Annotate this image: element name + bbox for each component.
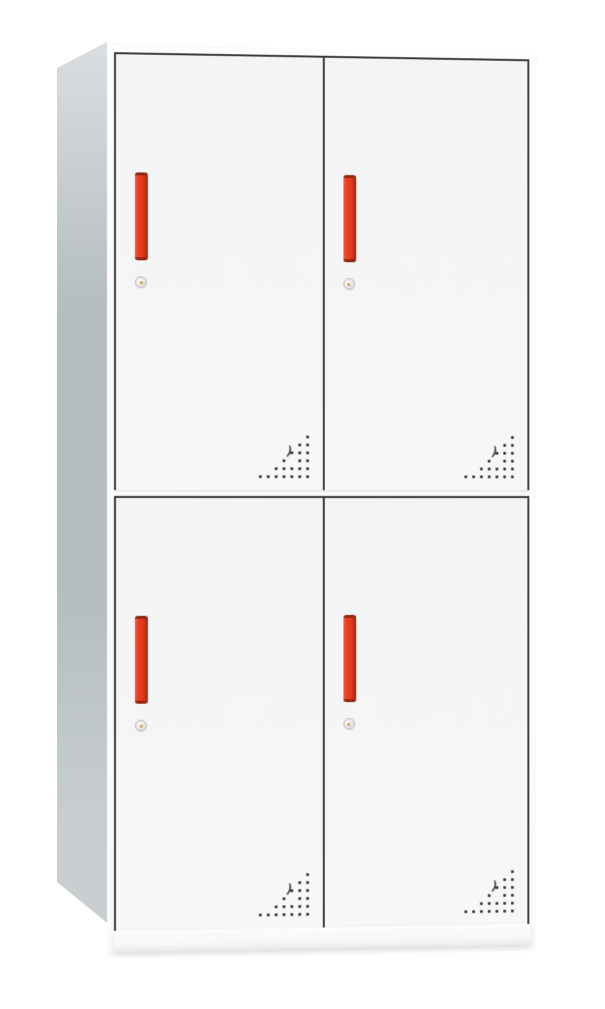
door-bottom-left[interactable]: ): [116, 498, 322, 933]
cam-lock[interactable]: [343, 278, 355, 290]
vent-hole: [504, 886, 507, 889]
vent-hole: [298, 460, 301, 463]
vent-hole: [298, 444, 301, 447]
cam-lock[interactable]: [343, 718, 355, 730]
vent-hole: [504, 452, 507, 455]
vent-hole: [298, 882, 301, 885]
vent-hole: [306, 889, 309, 892]
vent-hole: [480, 476, 483, 479]
vent-hole: [298, 468, 301, 471]
keyhole: [347, 283, 350, 286]
vent-hole: [480, 910, 483, 913]
vent-hole: [496, 468, 499, 471]
vent-hole: [511, 468, 514, 471]
door-handle[interactable]: [343, 175, 356, 262]
door-handle[interactable]: [135, 616, 148, 704]
vent-hole: [282, 460, 285, 463]
vent-hole: [275, 906, 278, 909]
vent-hole: [306, 905, 309, 908]
vent-hole: [488, 476, 491, 479]
vent-hole: [306, 460, 309, 463]
vent-hole: [504, 460, 507, 463]
vent-hole: [511, 871, 514, 874]
vent-hole: [282, 476, 285, 479]
door-handle[interactable]: [135, 172, 148, 260]
vent-hole: [290, 913, 293, 916]
vent-hole: [480, 468, 483, 471]
vent-hole: [511, 436, 514, 439]
locker-unit-upper: ) ): [114, 52, 529, 494]
vent-hole: [306, 452, 309, 455]
door-handle[interactable]: [343, 615, 356, 702]
cam-lock[interactable]: [135, 720, 147, 732]
vent-hole: [488, 910, 491, 913]
vent-hole: [473, 476, 476, 479]
keyhole: [347, 722, 350, 725]
vent-hole: [306, 897, 309, 900]
vent-hole: [488, 460, 491, 463]
vent-pattern: ): [259, 874, 309, 917]
vent-crescent-slot: ): [490, 880, 500, 894]
vent-hole: [306, 874, 309, 877]
vent-hole: [282, 906, 285, 909]
vent-hole: [504, 444, 507, 447]
vent-hole: [306, 881, 309, 884]
vent-crescent-slot: ): [490, 446, 500, 460]
keyhole: [139, 724, 142, 727]
vent-hole: [504, 894, 507, 897]
cabinet-front: ) ) ): [107, 46, 536, 958]
vent-hole: [496, 476, 499, 479]
vent-hole: [267, 914, 270, 917]
vent-pattern: ): [259, 436, 309, 478]
vent-hole: [298, 897, 301, 900]
vent-hole: [298, 905, 301, 908]
vent-hole: [511, 894, 514, 897]
vent-hole: [511, 878, 514, 881]
vent-hole: [504, 468, 507, 471]
vent-hole: [275, 914, 278, 917]
vent-hole: [480, 903, 483, 906]
vent-hole: [504, 476, 507, 479]
vent-hole: [298, 452, 301, 455]
vent-hole: [511, 902, 514, 905]
vent-hole: [267, 476, 270, 479]
vent-crescent-slot: ): [284, 445, 295, 459]
vent-hole: [488, 895, 491, 898]
vent-pattern: ): [465, 436, 514, 478]
vent-hole: [290, 468, 293, 471]
vent-hole: [473, 911, 476, 914]
vent-hole: [282, 914, 285, 917]
vent-hole: [259, 476, 262, 479]
vent-hole: [511, 444, 514, 447]
vent-hole: [488, 902, 491, 905]
vent-hole: [496, 902, 499, 905]
vent-pattern: ): [465, 871, 514, 914]
vent-hole: [306, 468, 309, 471]
vent-hole: [275, 468, 278, 471]
vent-hole: [465, 476, 468, 479]
vent-hole: [298, 913, 301, 916]
door-top-right[interactable]: ): [324, 58, 527, 492]
vent-hole: [504, 910, 507, 913]
vent-hole: [282, 898, 285, 901]
vent-hole: [504, 902, 507, 905]
vent-hole: [275, 476, 278, 479]
vent-hole: [290, 476, 293, 479]
vent-hole: [511, 476, 514, 479]
door-top-left[interactable]: ): [116, 54, 322, 492]
vent-hole: [259, 914, 262, 917]
vent-hole: [306, 436, 309, 439]
vent-hole: [488, 468, 491, 471]
vent-hole: [496, 910, 499, 913]
vent-hole: [511, 886, 514, 889]
vent-hole: [504, 879, 507, 882]
vent-hole: [511, 460, 514, 463]
door-bottom-right[interactable]: ): [324, 498, 527, 929]
vent-hole: [306, 913, 309, 916]
locker-unit-lower: ) ): [114, 496, 529, 935]
locker-product-photo: ) ) ): [0, 0, 605, 1009]
vent-hole: [511, 452, 514, 455]
vent-hole: [298, 476, 301, 479]
vent-hole: [306, 444, 309, 447]
cam-lock[interactable]: [135, 276, 147, 288]
vent-crescent-slot: ): [284, 883, 295, 897]
vent-hole: [298, 889, 301, 892]
vent-hole: [306, 476, 309, 479]
vent-hole: [290, 906, 293, 909]
vent-hole: [511, 910, 514, 913]
vent-hole: [465, 911, 468, 914]
keyhole: [139, 281, 142, 284]
vent-hole: [282, 468, 285, 471]
